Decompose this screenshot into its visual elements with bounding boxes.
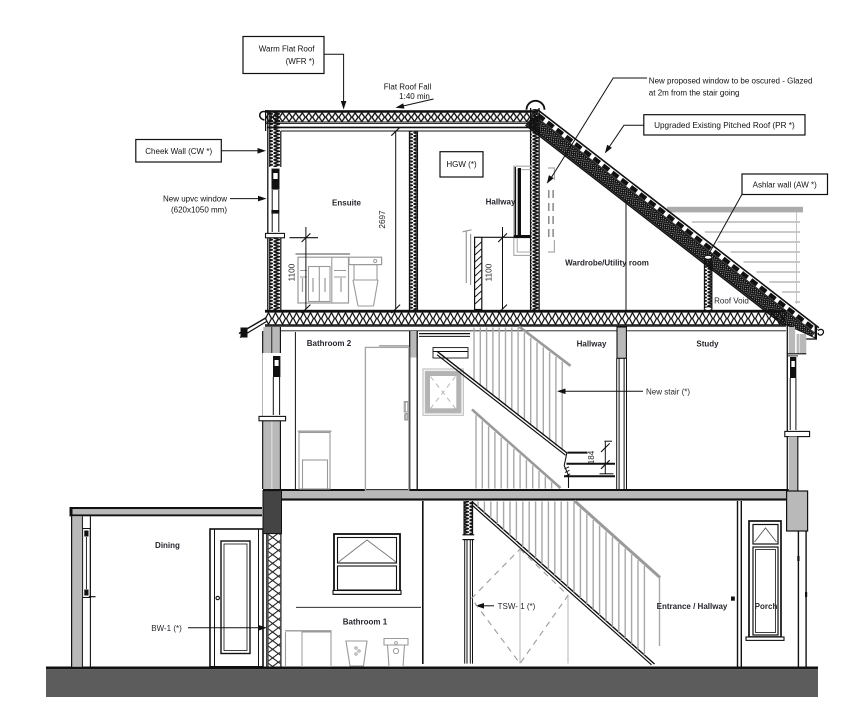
- svg-text:Wardrobe/Utility room: Wardrobe/Utility room: [565, 259, 649, 268]
- svg-text:Bathroom 1: Bathroom 1: [343, 618, 388, 627]
- svg-text:Upgraded Existing Pitched Roof: Upgraded Existing Pitched Roof (PR *): [654, 121, 795, 130]
- svg-text:TSW- 1 (*): TSW- 1 (*): [498, 602, 536, 611]
- svg-text:Study: Study: [696, 340, 719, 349]
- svg-text:(WFR *): (WFR *): [286, 57, 315, 66]
- svg-text:(620x1050 mm): (620x1050 mm): [171, 206, 227, 215]
- svg-text:Entrance / Hallway: Entrance / Hallway: [657, 602, 728, 611]
- svg-text:1100: 1100: [484, 263, 493, 281]
- svg-text:Cheek Wall (CW *): Cheek Wall (CW *): [145, 147, 212, 156]
- svg-text:Roof Void: Roof Void: [714, 297, 749, 306]
- svg-text:Warm Flat Roof: Warm Flat Roof: [259, 45, 315, 54]
- svg-text:HGW (*): HGW (*): [446, 160, 477, 169]
- svg-text:Flat Roof Fall: Flat Roof Fall: [384, 83, 432, 92]
- svg-text:2697: 2697: [378, 210, 387, 229]
- svg-text:Hallway: Hallway: [486, 198, 516, 207]
- svg-text:1100: 1100: [287, 263, 296, 281]
- svg-text:BW-1 (*): BW-1 (*): [151, 624, 182, 633]
- svg-text:at 2m from the stair going: at 2m from the stair going: [649, 89, 740, 98]
- svg-text:184: 184: [587, 450, 596, 464]
- svg-text:Porch: Porch: [755, 602, 778, 611]
- svg-text:New upvc window: New upvc window: [163, 195, 227, 204]
- svg-text:New stair (*): New stair (*): [646, 387, 690, 396]
- svg-text:Ensuite: Ensuite: [332, 199, 361, 208]
- svg-text:Hallway: Hallway: [577, 340, 607, 349]
- svg-text:1:40 min: 1:40 min: [399, 92, 430, 101]
- svg-text:Ashlar wall (AW *): Ashlar wall (AW *): [753, 180, 817, 189]
- svg-text:New proposed window to be oscu: New proposed window to be oscured - Glaz…: [649, 77, 813, 86]
- svg-text:Dining: Dining: [155, 541, 180, 550]
- svg-text:Bathroom 2: Bathroom 2: [307, 339, 352, 348]
